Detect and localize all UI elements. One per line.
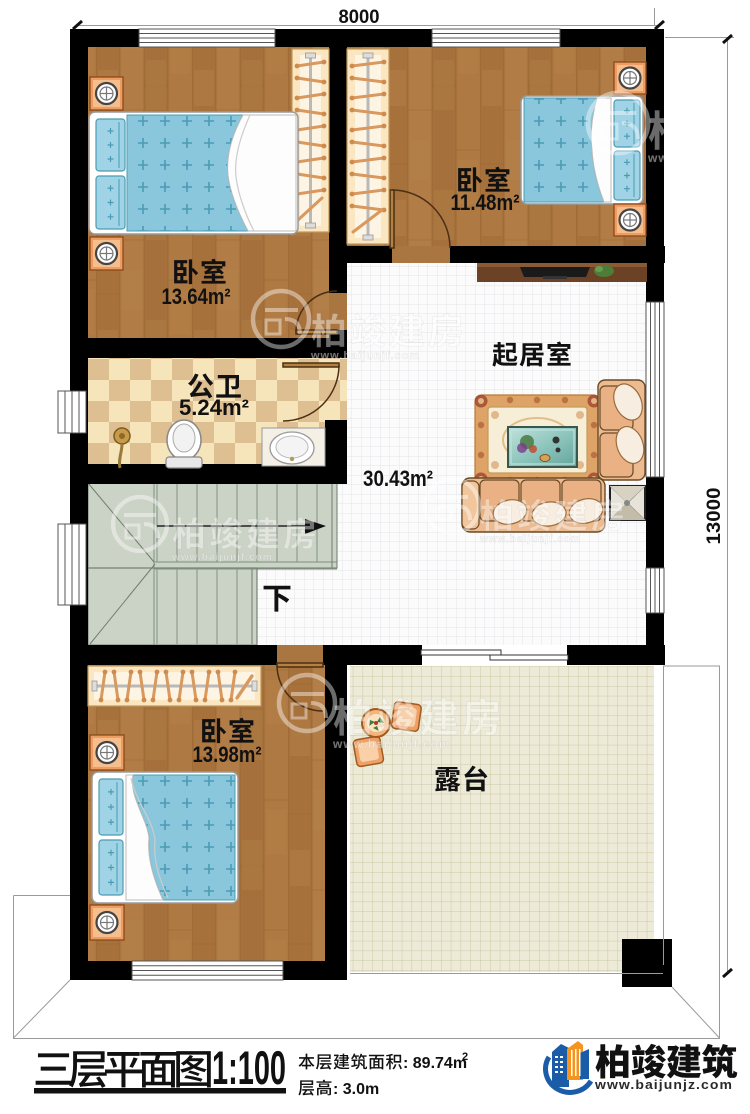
svg-text:13000: 13000 (704, 488, 725, 545)
svg-text:13.64m²: 13.64m² (162, 284, 231, 309)
svg-text:8000: 8000 (339, 7, 380, 28)
svg-text:www.baijunjf.com: www.baijunjf.com (332, 737, 451, 751)
svg-text:5.24m²: 5.24m² (179, 395, 249, 420)
svg-text:: 3.0m: : 3.0m (333, 1081, 379, 1098)
svg-text:13.98m²: 13.98m² (193, 742, 262, 767)
svg-text:www.baijunjf.com: www.baijunjf.com (171, 552, 273, 563)
svg-text:www.baijunjf.com: www.baijunjf.com (310, 350, 420, 362)
svg-text:11.48m²: 11.48m² (451, 190, 520, 215)
svg-text:1:100: 1:100 (212, 1041, 286, 1094)
svg-text:: 89.74m: : 89.74m (403, 1055, 467, 1072)
svg-text:www.baijunjf.com: www.baijunjf.com (647, 151, 750, 165)
svg-text:30.43m²: 30.43m² (363, 466, 433, 491)
svg-text:2: 2 (462, 1051, 468, 1063)
svg-text:www.baijunjf.com: www.baijunjf.com (479, 534, 581, 545)
svg-text:www.baijunjz.com: www.baijunjz.com (594, 1077, 733, 1092)
